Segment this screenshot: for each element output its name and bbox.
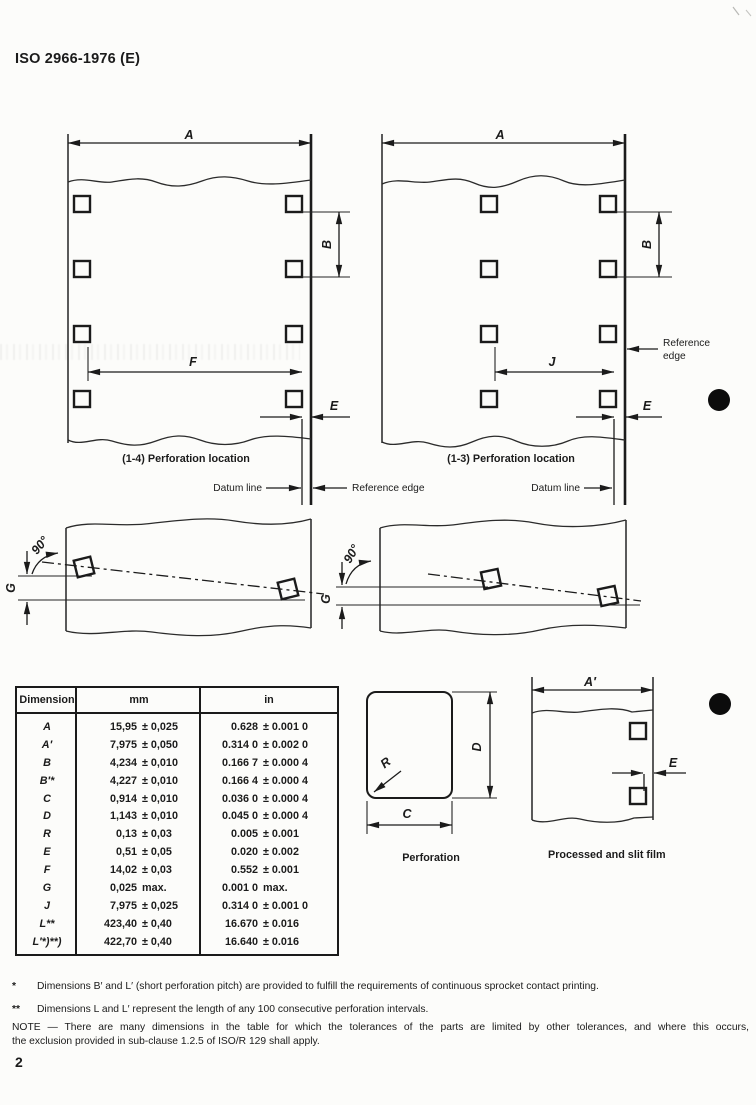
note-line-2: the exclusion provided in sub-clause 1.2… — [12, 1035, 749, 1049]
table-row: J7,975± 0,0250.314 0± 0.001 0 — [17, 897, 337, 915]
value: 14,02 — [77, 864, 137, 876]
tolerance: ± 0,010 — [142, 775, 178, 787]
cell-mm: 7,975± 0,025 — [77, 900, 201, 912]
footnote-1-symbol: * — [12, 981, 16, 992]
table-row: L′*)**)422,70± 0,4016.640± 0.016 — [17, 933, 337, 951]
tolerance: ± 0.001 — [263, 828, 299, 840]
dim-label-c: C — [402, 807, 412, 821]
page-number: 2 — [15, 1054, 23, 1070]
note-paragraph: NOTE — There are many dimensions in the … — [12, 1021, 749, 1048]
value: 16.640 — [201, 936, 258, 948]
cell-mm: 14,02± 0,03 — [77, 864, 201, 876]
cell-in: 0.314 0± 0.001 0 — [201, 900, 337, 912]
tolerance: ± 0.001 — [263, 864, 299, 876]
reference-edge-callout-line1: Reference — [663, 338, 710, 349]
value: 0.166 7 — [201, 757, 258, 769]
cell-in: 0.005± 0.001 — [201, 828, 337, 840]
tolerance: ± 0.016 — [263, 918, 299, 930]
value: 7,975 — [77, 900, 137, 912]
tolerance: ± 0.000 4 — [263, 775, 308, 787]
value: 1,143 — [77, 810, 137, 822]
cell-dimension: R — [17, 828, 77, 840]
cell-in: 0.166 7± 0.000 4 — [201, 757, 337, 769]
value: 0.036 0 — [201, 793, 258, 805]
table-row: B4,234± 0,0100.166 7± 0.000 4 — [17, 754, 337, 772]
cell-in: 0.166 4± 0.000 4 — [201, 775, 337, 787]
table-row: E0,51± 0,050.020± 0.002 — [17, 843, 337, 861]
cell-in: 0.552± 0.001 — [201, 864, 337, 876]
tolerance: ± 0.002 — [263, 846, 299, 858]
tolerance: ± 0,010 — [142, 793, 178, 805]
angle-90-label: 90° — [28, 533, 52, 557]
value: 4,227 — [77, 775, 137, 787]
tolerance: ± 0.016 — [263, 936, 299, 948]
perforations-right-column — [286, 196, 302, 407]
cell-in: 0.020± 0.002 — [201, 846, 337, 858]
value: 0.628 — [201, 721, 258, 733]
tolerance: ± 0,010 — [142, 810, 178, 822]
tolerance: ± 0.001 0 — [263, 721, 308, 733]
footnote-2-text: Dimensions L and L′ represent the length… — [37, 1004, 737, 1015]
dim-label-j: J — [549, 355, 557, 369]
value: 7,975 — [77, 739, 137, 751]
table-row: C0,914± 0,0100.036 0± 0.000 4 — [17, 790, 337, 808]
dim-label-g: G — [4, 583, 18, 593]
cell-dimension: C — [17, 793, 77, 805]
perforation-square — [630, 723, 646, 739]
cell-dimension: D — [17, 810, 77, 822]
dim-label-r: R — [378, 755, 394, 772]
dim-label-e: E — [643, 399, 652, 413]
value: 0,914 — [77, 793, 137, 805]
table-row: B′*4,227± 0,0100.166 4± 0.000 4 — [17, 772, 337, 790]
dim-label-f: F — [189, 355, 197, 369]
cell-in: 0.036 0± 0.000 4 — [201, 793, 337, 805]
cell-in: 0.628± 0.001 0 — [201, 721, 337, 733]
caption-left-film: (1-4) Perforation location — [122, 453, 250, 465]
column-header-mm: mm — [77, 694, 201, 706]
tolerance: max. — [263, 882, 288, 894]
dim-label-b: B — [320, 240, 334, 249]
column-header-in: in — [201, 694, 337, 706]
tolerance: ± 0,025 — [142, 900, 178, 912]
table-row: R0,13± 0,030.005± 0.001 — [17, 825, 337, 843]
cell-mm: 1,143± 0,010 — [77, 810, 201, 822]
perforations-right-column — [600, 196, 616, 407]
dim-label-g: G — [319, 594, 333, 604]
tolerance: ± 0,40 — [142, 918, 172, 930]
perforation-square — [481, 569, 501, 589]
tolerance: ± 0,050 — [142, 739, 178, 751]
perforation-outline — [367, 692, 452, 798]
caption-slit-film: Processed and slit film — [548, 849, 666, 861]
cell-in: 0.314 0± 0.002 0 — [201, 739, 337, 751]
table-row: G0,025max.0.001 0max. — [17, 879, 337, 897]
value: 4,234 — [77, 757, 137, 769]
tolerance: ± 0.000 4 — [263, 810, 308, 822]
reference-edge-callout-line2: edge — [663, 351, 686, 362]
cell-mm: 4,234± 0,010 — [77, 757, 201, 769]
tolerance: ± 0.002 0 — [263, 739, 308, 751]
cell-dimension: G — [17, 882, 77, 894]
cell-dimension: L′*)**) — [17, 936, 77, 948]
dim-label-a: A — [494, 128, 504, 142]
cell-dimension: A′ — [17, 739, 77, 751]
table-column-divider — [75, 688, 77, 954]
cell-in: 16.640± 0.016 — [201, 936, 337, 948]
angle-90-label: 90° — [341, 541, 363, 565]
value: 0.166 4 — [201, 775, 258, 787]
table-row: D1,143± 0,0100.045 0± 0.000 4 — [17, 807, 337, 825]
table-row: F14,02± 0,030.552± 0.001 — [17, 861, 337, 879]
cell-dimension: A — [17, 721, 77, 733]
reference-edge-label: Reference edge — [352, 483, 425, 494]
table-row: A15,95± 0,0250.628± 0.001 0 — [17, 718, 337, 736]
cell-mm: 7,975± 0,050 — [77, 739, 201, 751]
tolerance: ± 0,03 — [142, 828, 172, 840]
dim-label-d: D — [470, 742, 484, 751]
cell-mm: 4,227± 0,010 — [77, 775, 201, 787]
tolerance: ± 0,025 — [142, 721, 178, 733]
registration-dot — [709, 693, 731, 715]
document-page: ISO 2966-1976 (E) A — [0, 0, 756, 1105]
value: 423,40 — [77, 918, 137, 930]
column-header-dimension: Dimension — [17, 694, 77, 706]
tolerance: ± 0,010 — [142, 757, 178, 769]
cell-mm: 0,13± 0,03 — [77, 828, 201, 840]
left-film-diagram: A B F E (1-4) Perfor — [68, 128, 425, 505]
registration-dot — [708, 389, 730, 411]
dim-label-a: A — [183, 128, 193, 142]
value: 422,70 — [77, 936, 137, 948]
footnote-1-text: Dimensions B′ and L′ (short perforation … — [37, 981, 737, 992]
value: 0.020 — [201, 846, 258, 858]
value: 0.005 — [201, 828, 258, 840]
dim-label-e: E — [669, 756, 678, 770]
table-body: A15,95± 0,0250.628± 0.001 0A′7,975± 0,05… — [17, 714, 337, 954]
table-row: L**423,40± 0,4016.670± 0.016 — [17, 915, 337, 933]
caption-perforation: Perforation — [402, 852, 460, 864]
tolerance: ± 0,03 — [142, 864, 172, 876]
value: 0.314 0 — [201, 739, 258, 751]
tolerance: ± 0,40 — [142, 936, 172, 948]
right-squareness-diagram: G 90° — [319, 520, 641, 635]
right-film-diagram: A B Reference edge J — [382, 128, 710, 505]
tolerance: ± 0.000 4 — [263, 757, 308, 769]
perforation-square — [598, 586, 618, 606]
datum-line-label: Datum line — [531, 483, 580, 494]
left-squareness-diagram: G 90° — [4, 519, 324, 636]
scan-artifact-marks — [733, 7, 751, 16]
value: 0.314 0 — [201, 900, 258, 912]
tolerance: max. — [142, 882, 167, 894]
perforation-detail-diagram: R D C Perforation — [367, 692, 497, 864]
value: 0.045 0 — [201, 810, 258, 822]
value: 16.670 — [201, 918, 258, 930]
cell-mm: 0,51± 0,05 — [77, 846, 201, 858]
cell-dimension: F — [17, 864, 77, 876]
value: 0,025 — [77, 882, 137, 894]
tolerance: ± 0.001 0 — [263, 900, 308, 912]
value: 0,51 — [77, 846, 137, 858]
value: 0,13 — [77, 828, 137, 840]
footnote-2-symbol: ** — [12, 1004, 20, 1015]
table-header-row: Dimension mm in — [17, 688, 337, 714]
cell-in: 0.001 0max. — [201, 882, 337, 894]
dim-label-a-prime: A′ — [583, 675, 597, 689]
table-column-divider — [199, 688, 201, 954]
cell-mm: 422,70± 0,40 — [77, 936, 201, 948]
cell-in: 16.670± 0.016 — [201, 918, 337, 930]
dim-label-b: B — [640, 240, 654, 249]
value: 15,95 — [77, 721, 137, 733]
cell-mm: 15,95± 0,025 — [77, 721, 201, 733]
datum-line-label: Datum line — [213, 483, 262, 494]
cell-dimension: L** — [17, 918, 77, 930]
tolerance: ± 0,05 — [142, 846, 172, 858]
caption-right-film: (1-3) Perforation location — [447, 453, 575, 465]
dim-label-e: E — [330, 399, 339, 413]
value: 0.552 — [201, 864, 258, 876]
cell-mm: 423,40± 0,40 — [77, 918, 201, 930]
cell-dimension: B′* — [17, 775, 77, 787]
cell-mm: 0,914± 0,010 — [77, 793, 201, 805]
tolerance: ± 0.000 4 — [263, 793, 308, 805]
cell-mm: 0,025max. — [77, 882, 201, 894]
slit-film-diagram: A′ E Processed and slit film — [532, 675, 686, 861]
cell-dimension: E — [17, 846, 77, 858]
table-row: A′7,975± 0,0500.314 0± 0.002 0 — [17, 736, 337, 754]
cell-dimension: B — [17, 757, 77, 769]
value: 0.001 0 — [201, 882, 258, 894]
cell-in: 0.045 0± 0.000 4 — [201, 810, 337, 822]
cell-dimension: J — [17, 900, 77, 912]
note-line-1: NOTE — There are many dimensions in the … — [12, 1021, 749, 1035]
dimension-table: Dimension mm in A15,95± 0,0250.628± 0.00… — [15, 686, 339, 956]
